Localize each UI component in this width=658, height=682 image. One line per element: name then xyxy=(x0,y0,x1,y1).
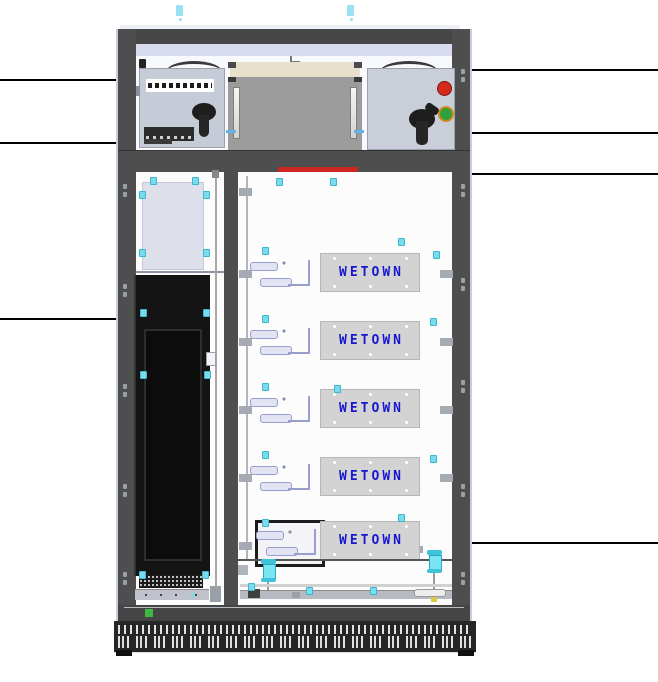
status-led xyxy=(145,609,153,617)
red-button[interactable] xyxy=(437,81,452,96)
screw-marker-icon xyxy=(204,371,211,379)
module-brand-label: WETOWN xyxy=(336,533,404,548)
vent-grille xyxy=(139,575,203,588)
screw-marker-icon xyxy=(262,247,269,255)
rod-bracket xyxy=(206,352,216,366)
screw-marker-icon xyxy=(203,191,210,199)
module-brand-label: WETOWN xyxy=(336,333,404,348)
battery-module-4[interactable]: WETOWN xyxy=(320,457,420,496)
foot-left xyxy=(116,650,132,656)
corner-marker xyxy=(139,59,146,68)
bottom-rail-upper xyxy=(240,584,452,587)
screw-marker-icon xyxy=(276,178,283,186)
screw-marker-icon xyxy=(306,587,313,595)
bracket-icon xyxy=(228,62,236,68)
top-marker-icon xyxy=(347,5,354,16)
switch-unit-left xyxy=(139,68,225,148)
battery-module-5[interactable]: WETOWN xyxy=(320,521,420,560)
module-4-wiring xyxy=(250,463,318,493)
green-button[interactable] xyxy=(438,106,454,122)
plinth xyxy=(114,621,476,653)
screw-marker-icon xyxy=(430,318,437,326)
rotary-switch-stem[interactable] xyxy=(416,121,428,145)
screw-marker-icon xyxy=(202,571,209,579)
screw-marker-icon xyxy=(398,514,405,522)
screw-marker-icon xyxy=(370,587,377,595)
screw-marker-icon xyxy=(330,178,337,186)
module-3-wiring xyxy=(250,395,318,425)
rail-clamp-small xyxy=(292,592,300,598)
bottom-bracket xyxy=(238,565,248,575)
cabinet-top-inner-strip xyxy=(136,44,452,56)
mounting-tab xyxy=(440,338,453,346)
terminal-strip-contacts xyxy=(148,83,212,88)
module-1-wiring xyxy=(250,259,318,289)
rod-fitting xyxy=(212,170,219,178)
screw-marker-icon xyxy=(262,383,269,391)
screw-marker-icon xyxy=(433,251,440,259)
cabinet-top-bar xyxy=(118,29,468,44)
top-marker-dot-icon xyxy=(179,18,182,21)
screw-marker-icon xyxy=(139,249,146,257)
screw-marker-icon xyxy=(248,583,255,591)
door-bottom-bar xyxy=(135,589,209,600)
module-2-wiring xyxy=(250,327,318,357)
screw-marker-icon xyxy=(192,177,199,185)
foot-right xyxy=(458,650,474,656)
mounting-tab xyxy=(440,474,453,482)
cabinet-diagram: WETOWN WETOWN WETOWN WETOWN WETOWN xyxy=(0,0,658,682)
terminal-strip xyxy=(146,79,214,92)
terminal-blocks-small xyxy=(144,139,172,144)
transformer-unit xyxy=(228,77,362,150)
screw-marker-icon xyxy=(140,371,147,379)
cable-comb-bottom xyxy=(118,636,472,648)
screw-marker-icon xyxy=(262,519,269,527)
callout-line-right-switch xyxy=(458,132,658,134)
left-bay-shelf-line xyxy=(136,271,224,273)
screw-marker-icon xyxy=(262,315,269,323)
mounting-tab xyxy=(239,188,252,196)
control-unit-right xyxy=(367,68,455,150)
screw-marker-icon xyxy=(262,451,269,459)
module-brand-label: WETOWN xyxy=(336,401,404,416)
cable-comb-top xyxy=(118,625,472,634)
battery-module-1[interactable]: WETOWN xyxy=(320,253,420,292)
base-highlight-line xyxy=(124,607,464,608)
left-bay-plate xyxy=(142,182,204,270)
rail-slider xyxy=(414,589,446,597)
yellow-fitting xyxy=(431,597,437,602)
screw-marker-icon xyxy=(430,455,437,463)
screw-marker-icon xyxy=(139,191,146,199)
screw-marker-icon xyxy=(203,309,210,317)
mounting-tab xyxy=(440,406,453,414)
screw-marker-icon xyxy=(150,177,157,185)
cabinet-right-edge-line xyxy=(470,29,472,621)
bracket-icon xyxy=(354,62,362,68)
top-marker-dot-icon xyxy=(350,18,353,21)
right-bay-rod xyxy=(246,176,248,560)
alignment-tick-icon xyxy=(226,130,236,133)
module-brand-label: WETOWN xyxy=(336,469,404,484)
battery-module-3[interactable]: WETOWN xyxy=(320,389,420,428)
battery-module-2[interactable]: WETOWN xyxy=(320,321,420,360)
screw-marker-icon xyxy=(139,571,146,579)
top-marker-icon xyxy=(176,5,183,16)
screw-marker-icon xyxy=(140,309,147,317)
alignment-tick-icon xyxy=(354,130,364,133)
screw-marker-icon xyxy=(334,385,341,393)
module-brand-label: WETOWN xyxy=(336,265,404,280)
black-door[interactable] xyxy=(134,275,210,576)
mounting-tab xyxy=(440,270,453,278)
mounting-tab xyxy=(239,542,252,550)
module-5-wiring xyxy=(256,528,324,558)
screw-marker-icon xyxy=(203,249,210,257)
mid-rail xyxy=(224,172,238,605)
door-inner-panel xyxy=(144,329,202,561)
rod-fitting-bottom xyxy=(210,586,221,602)
left-bay-rod xyxy=(215,175,217,600)
breaker-handle-stem[interactable] xyxy=(199,115,209,137)
screw-marker-icon xyxy=(398,238,405,246)
left-unit-hinge xyxy=(136,86,140,96)
